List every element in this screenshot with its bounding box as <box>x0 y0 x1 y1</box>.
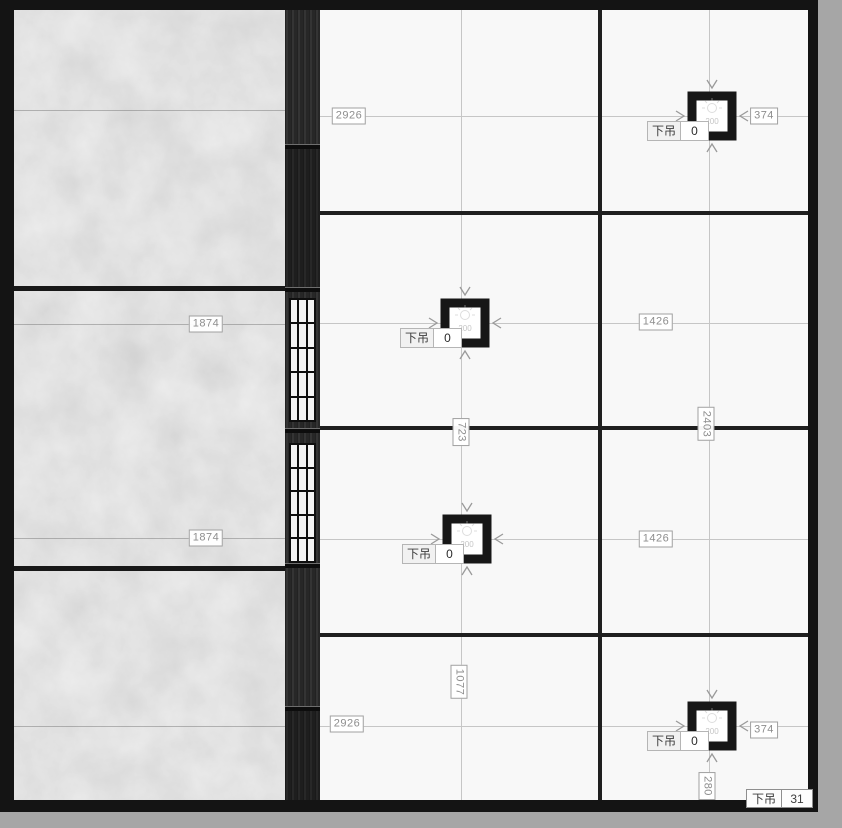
centerline <box>14 726 285 727</box>
ceiling-beam <box>320 426 808 430</box>
centerline <box>320 323 808 324</box>
drop-badge-value[interactable]: 31 <box>782 789 813 808</box>
wall-segment-shade <box>285 146 320 288</box>
dimension-label-right-col-height[interactable]: 2403 <box>698 407 715 441</box>
window-lower[interactable] <box>289 443 316 563</box>
wall-joint <box>285 563 320 568</box>
dark-wall-strip[interactable] <box>285 10 320 800</box>
drop-height-tag[interactable]: 下吊 0 <box>402 544 464 564</box>
ceiling-plan-canvas: 1874 1874 <box>0 0 842 828</box>
light-fixture[interactable]: 200 下吊 0 <box>422 494 512 584</box>
drop-tag-value[interactable]: 0 <box>434 328 462 348</box>
wall-joint <box>285 144 320 149</box>
drop-tag-label: 下吊 <box>647 731 681 751</box>
ceiling-beam <box>320 633 808 637</box>
centerline <box>14 324 285 325</box>
light-fixture[interactable]: 200 下吊 0 <box>667 71 757 161</box>
wall-joint <box>285 287 320 292</box>
concrete-wall-panels[interactable]: 1874 1874 <box>14 10 285 800</box>
ceiling-beam <box>320 211 808 215</box>
wall-joint <box>285 706 320 711</box>
drop-badge-label: 下吊 <box>746 789 782 808</box>
light-fixture-icon: 200 <box>422 494 512 584</box>
wall-segment-shade <box>285 710 320 800</box>
dimension-label-left-col-lower-height[interactable]: 1077 <box>451 665 468 699</box>
light-fixture[interactable]: 200 下吊 0 <box>420 278 510 368</box>
panel-joint <box>14 286 285 291</box>
drop-tag-label: 下吊 <box>647 121 681 141</box>
window-panes <box>291 300 314 420</box>
dimension-label-mid-gap[interactable]: 723 <box>453 418 470 446</box>
dimension-label-bottom-right-height[interactable]: 280 <box>699 772 716 800</box>
drop-tag-value[interactable]: 0 <box>681 121 709 141</box>
centerline <box>14 538 285 539</box>
light-fixture[interactable]: 200 下吊 0 <box>667 681 757 771</box>
centerline <box>14 110 285 111</box>
drop-height-summary-badge[interactable]: 下吊 31 <box>746 789 813 808</box>
dimension-label-bottom-width[interactable]: 2926 <box>330 716 364 733</box>
dimension-label-left-upper[interactable]: 1874 <box>189 316 223 333</box>
light-fixture-icon: 200 <box>667 71 757 161</box>
dimension-label-top-width[interactable]: 2926 <box>332 108 366 125</box>
drop-height-tag[interactable]: 下吊 0 <box>647 731 709 751</box>
light-fixture-icon: 200 <box>420 278 510 368</box>
dimension-label-left-lower[interactable]: 1874 <box>189 530 223 547</box>
drop-tag-value[interactable]: 0 <box>436 544 464 564</box>
concrete-texture <box>14 10 285 800</box>
ceiling-grid-area[interactable]: 200 下吊 0 200 下吊 0 <box>320 10 808 800</box>
drop-tag-label: 下吊 <box>402 544 436 564</box>
panel-joint <box>14 566 285 571</box>
window-panes <box>291 445 314 561</box>
wall-joint <box>285 428 320 433</box>
dimension-label-right-mid-upper[interactable]: 1426 <box>639 314 673 331</box>
light-fixture-icon: 200 <box>667 681 757 771</box>
centerline <box>320 539 808 540</box>
ceiling-beam <box>598 10 602 800</box>
dimension-label-right-mid-lower[interactable]: 1426 <box>639 531 673 548</box>
drop-height-tag[interactable]: 下吊 0 <box>647 121 709 141</box>
drop-height-tag[interactable]: 下吊 0 <box>400 328 462 348</box>
window-upper[interactable] <box>289 298 316 422</box>
drop-tag-label: 下吊 <box>400 328 434 348</box>
drop-tag-value[interactable]: 0 <box>681 731 709 751</box>
